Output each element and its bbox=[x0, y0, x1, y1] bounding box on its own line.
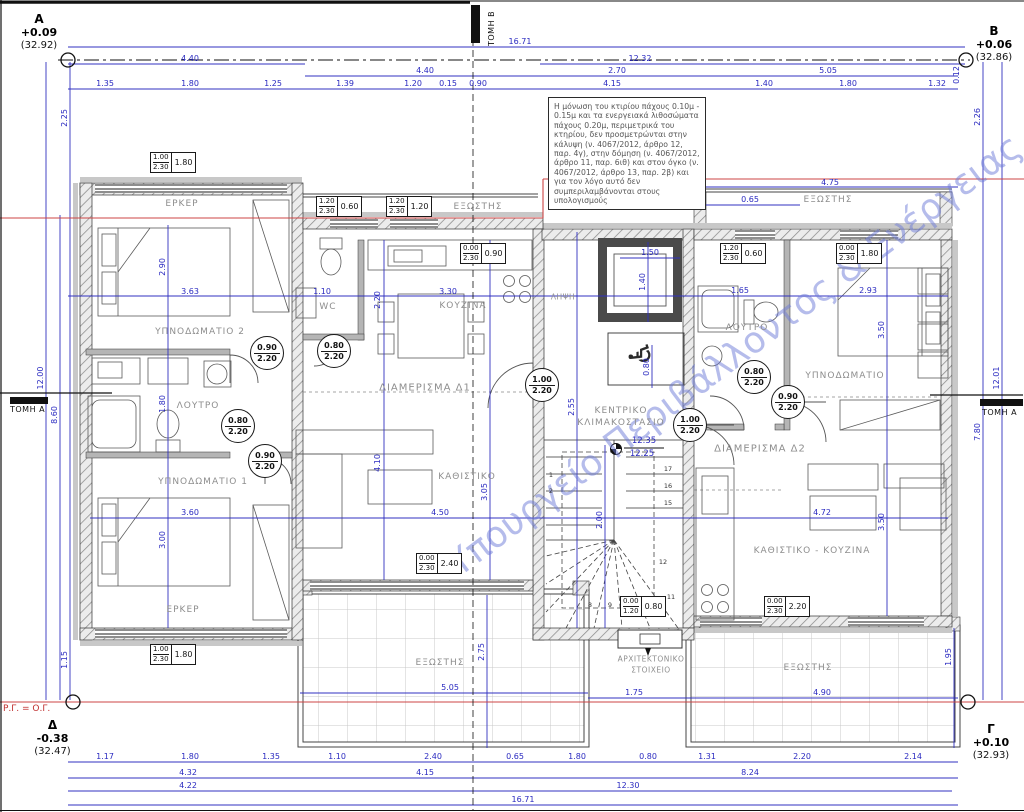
balcony-decks bbox=[296, 189, 960, 747]
walls bbox=[80, 183, 952, 640]
windows bbox=[95, 184, 924, 638]
floor-plan-drawing bbox=[0, 0, 1024, 812]
level-marker bbox=[611, 444, 665, 455]
floor-plan-sheet: Υπουργείο Περιβάλλοντος & Ενέργειας Η μό… bbox=[0, 0, 1024, 812]
insulation-band bbox=[73, 177, 958, 646]
section-marks bbox=[0, 5, 1023, 406]
dashed-partitions bbox=[303, 392, 940, 490]
lift-shaft bbox=[598, 238, 682, 322]
furniture bbox=[88, 200, 948, 620]
door-arcs bbox=[230, 340, 826, 484]
wheelchair-platform-box bbox=[608, 333, 684, 385]
regulation-note: Η μόνωση του κτιρίου πάχους 0.10μ - 0.15… bbox=[548, 97, 706, 210]
architectural-element bbox=[618, 630, 682, 656]
